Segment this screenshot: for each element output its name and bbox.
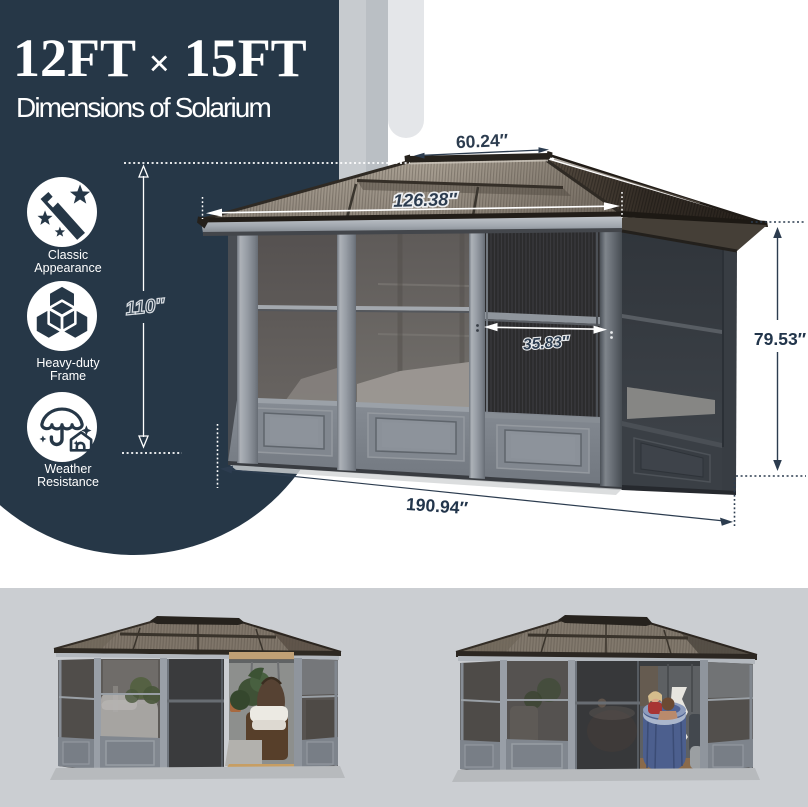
svg-text:60.24″: 60.24″: [455, 130, 509, 152]
svg-text:110″: 110″: [124, 295, 166, 320]
svg-text:190.94″: 190.94″: [405, 494, 469, 518]
svg-text:35.83″: 35.83″: [522, 333, 570, 353]
svg-text:126.38″: 126.38″: [393, 189, 459, 211]
svg-text:79.53″: 79.53″: [754, 329, 807, 349]
